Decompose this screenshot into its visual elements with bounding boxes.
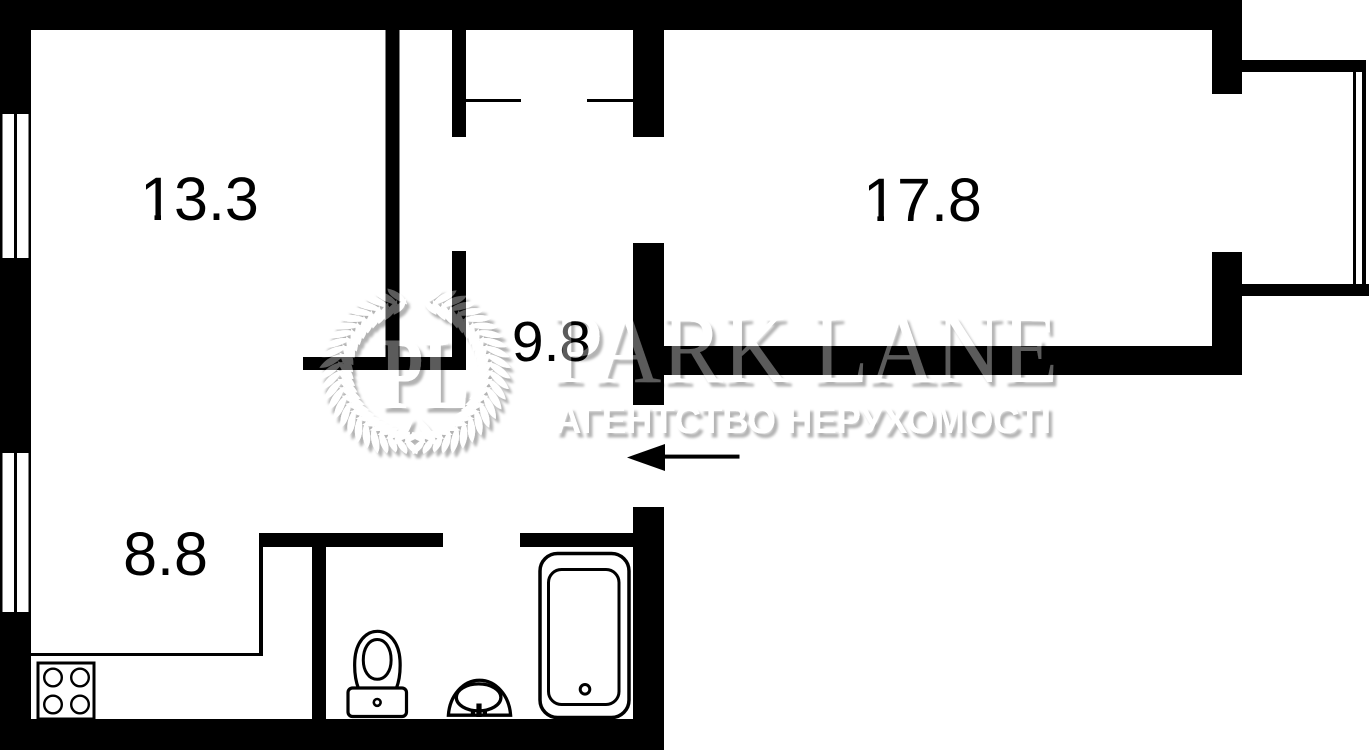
svg-text:17.8: 17.8 bbox=[863, 166, 982, 234]
svg-text:8.8: 8.8 bbox=[123, 520, 208, 588]
svg-text:13.3: 13.3 bbox=[140, 165, 259, 233]
